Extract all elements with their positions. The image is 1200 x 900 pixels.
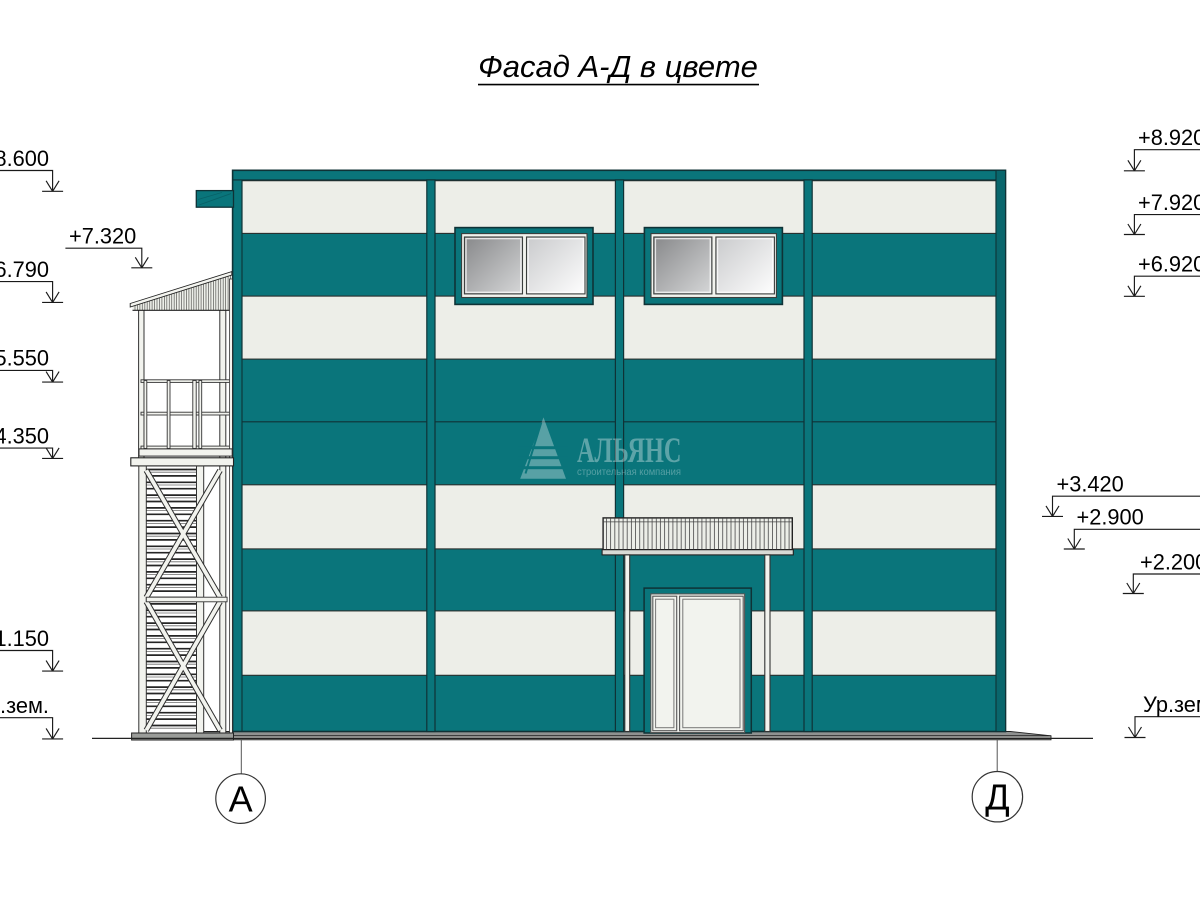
svg-text:+4.350: +4.350 <box>0 423 49 448</box>
svg-text:+7.920: +7.920 <box>1138 190 1200 215</box>
svg-text:+2.900: +2.900 <box>1077 505 1144 530</box>
svg-text:+3.420: +3.420 <box>1057 472 1124 497</box>
svg-text:+6.920: +6.920 <box>1138 252 1200 277</box>
svg-text:А: А <box>229 779 253 820</box>
svg-text:+8.600: +8.600 <box>0 146 49 171</box>
svg-text:Ур.зем.: Ур.зем. <box>0 693 49 718</box>
svg-text:+5.550: +5.550 <box>0 346 49 371</box>
svg-text:+1.150: +1.150 <box>0 626 49 651</box>
svg-text:строительная компания: строительная компания <box>577 466 681 478</box>
svg-text:АЛЬЯНС: АЛЬЯНС <box>577 430 682 470</box>
svg-text:+2.200: +2.200 <box>1140 549 1200 574</box>
svg-text:Д: Д <box>985 777 1009 818</box>
svg-text:+8.920: +8.920 <box>1138 125 1200 150</box>
svg-text:+7.320: +7.320 <box>69 224 136 249</box>
svg-text:+6.790: +6.790 <box>0 257 49 282</box>
svg-text:Ур.зем.: Ур.зем. <box>1143 692 1200 717</box>
svg-text:Фасад А-Д в цвете: Фасад А-Д в цвете <box>478 49 758 84</box>
